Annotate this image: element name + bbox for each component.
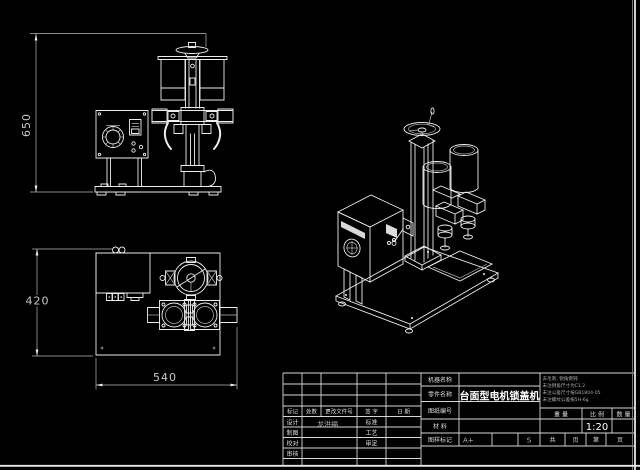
check-label: 校对 xyxy=(286,440,298,448)
approve-label: 审定 xyxy=(365,440,377,448)
capping-heads-iso xyxy=(433,186,485,250)
note-line: 未注螺纹公差按5H-6g xyxy=(543,396,589,403)
control-box-iso xyxy=(338,195,403,304)
revision-date-label: 日 期 xyxy=(397,409,410,416)
audit-label: 审核 xyxy=(286,450,298,458)
control-box-front xyxy=(96,111,148,187)
part-name-label: 零件名称 xyxy=(428,391,452,399)
dimension-540: 540 xyxy=(96,327,237,390)
top-width-dim: 540 xyxy=(153,371,177,384)
revision-mark-label: 标记 xyxy=(287,408,299,416)
sheets-total-label: 共 xyxy=(549,436,555,444)
material-label: 材 料 xyxy=(433,423,447,431)
revision-sign-label: 签 字 xyxy=(365,408,378,416)
technical-notes: 去毛刺, 锐角倒钝 未注倒角尺寸为C1.2 未注公差尺寸按GB1804-05 未… xyxy=(543,375,601,403)
revision-count-label: 处数 xyxy=(306,408,318,416)
dimension-420: 420 xyxy=(26,249,113,356)
front-height-dim: 650 xyxy=(20,113,33,137)
cad-viewport[interactable]: 650 xyxy=(0,0,640,470)
machine-name-label: 机器名称 xyxy=(428,376,452,384)
front-view: 650 xyxy=(20,34,233,196)
top-view: 420 540 xyxy=(26,247,238,390)
sheet-word2-label: 页 xyxy=(617,437,623,444)
dimension-650: 650 xyxy=(20,34,206,193)
revision-fileno-label: 更改文件号 xyxy=(325,408,353,416)
drawing-no-label: 图纸编号 xyxy=(428,407,452,415)
draft-label: 制图 xyxy=(286,429,298,437)
cad-drawing: 650 xyxy=(0,0,640,470)
motor-cylinders-iso xyxy=(423,145,478,209)
button xyxy=(132,142,135,145)
mark-label: 图样标记 xyxy=(428,436,452,444)
sheet-no-label: 第 xyxy=(593,436,599,444)
part-name-value: 台面型电机锁盖机 xyxy=(460,390,540,403)
qty-label: 数 量 xyxy=(617,411,631,419)
sheet-word-label: 页 xyxy=(572,437,578,444)
isometric-view xyxy=(336,108,498,333)
weight-label: 重 量 xyxy=(554,411,568,419)
capping-heads-plan xyxy=(148,300,238,331)
scale-label: 比 例 xyxy=(590,411,604,419)
button xyxy=(139,145,142,148)
handwheel-plan xyxy=(160,258,222,301)
design-label: 设计 xyxy=(286,419,298,427)
grade-value: S xyxy=(527,437,532,445)
process-label: 工艺 xyxy=(365,429,377,437)
note-line: 去毛刺, 锐角倒钝 xyxy=(543,375,578,382)
scale-value: 1:20 xyxy=(586,422,608,433)
button xyxy=(132,149,135,152)
top-height-dim: 420 xyxy=(26,295,50,308)
note-line: 未注公差尺寸按GB1804-05 xyxy=(543,389,601,396)
standard-label: 标准 xyxy=(365,419,377,427)
designer-name: 龙洪福 xyxy=(317,420,338,429)
note-line: 未注倒角尺寸为C1.2 xyxy=(543,382,586,389)
title-block: 标记 处数 更改文件号 签 字 日 期 设计 龙洪福 标准 制图 工艺 校对 审… xyxy=(283,373,635,466)
mark-value: A+ xyxy=(463,437,474,445)
